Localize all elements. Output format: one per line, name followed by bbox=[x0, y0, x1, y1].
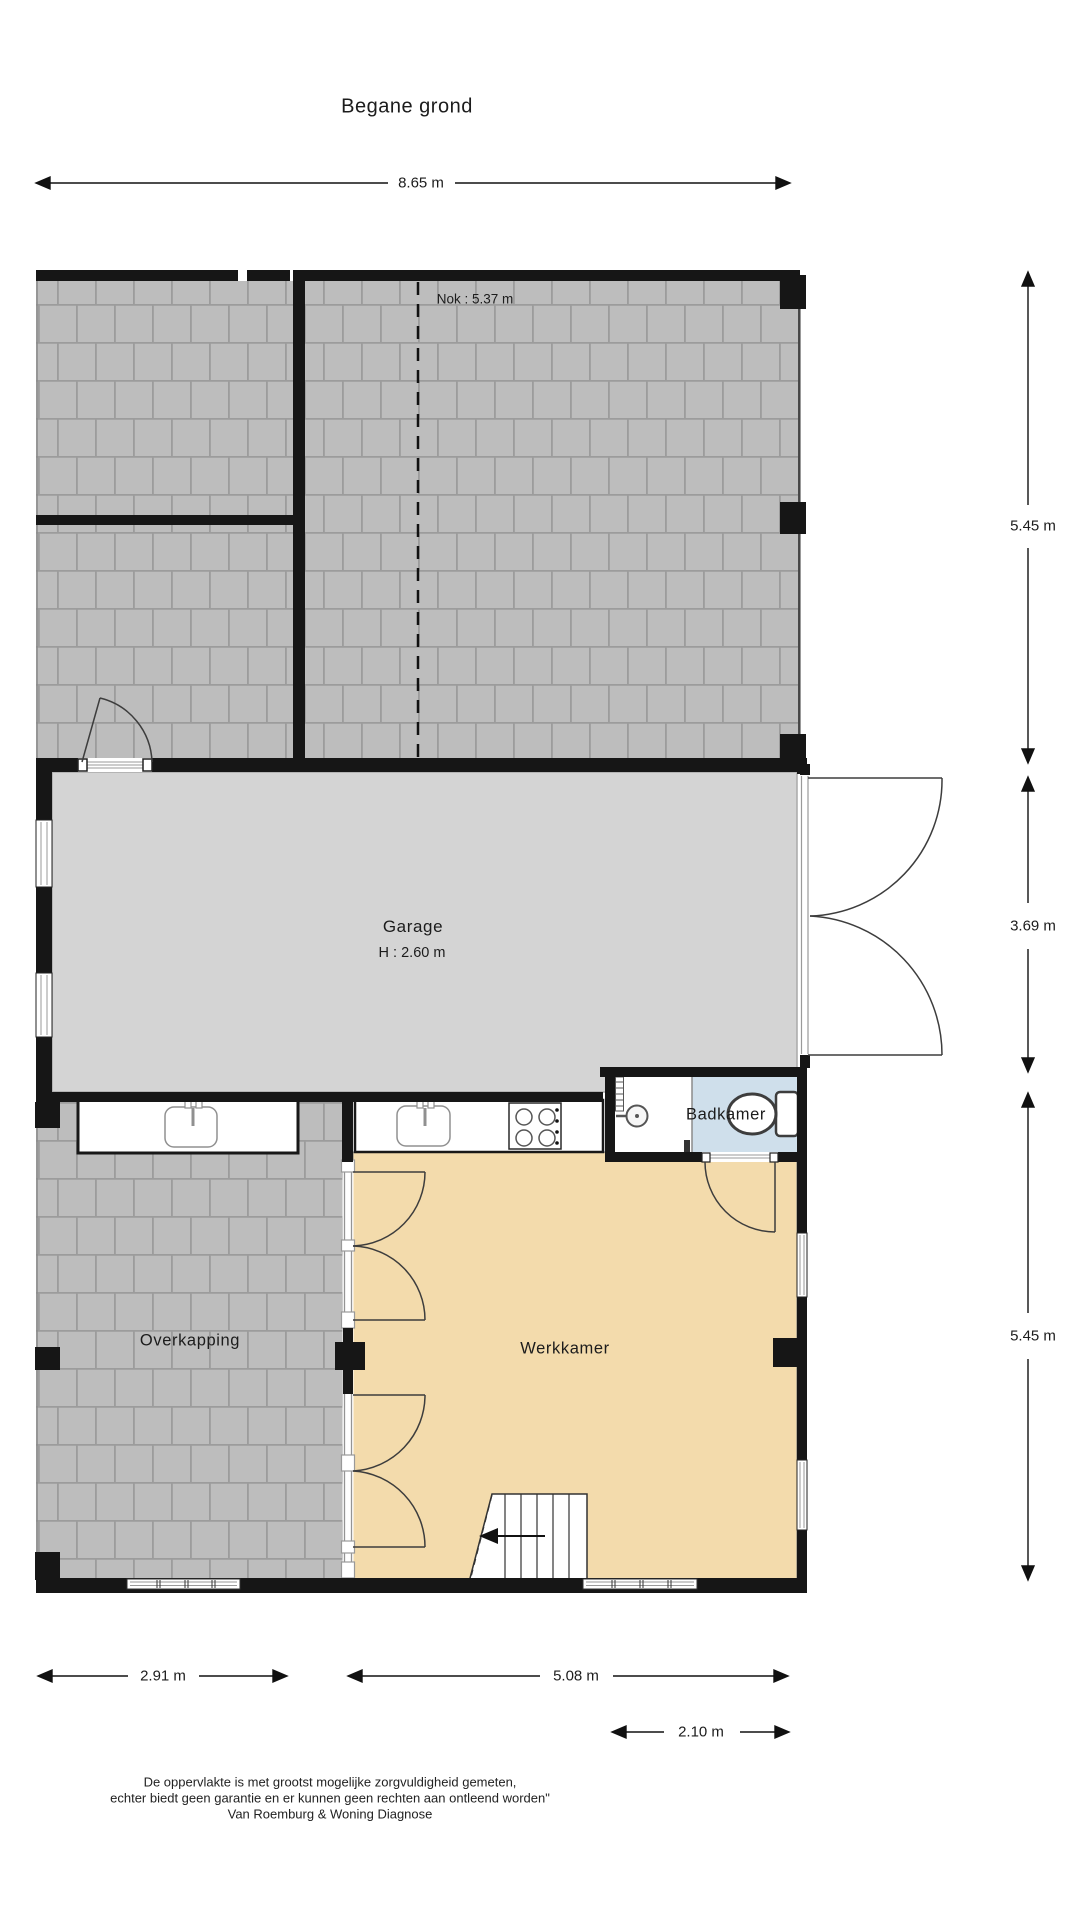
room-label-overkapping: Overkapping bbox=[140, 1332, 240, 1351]
disclaimer-line-2: echter biedt geen garantie en er kunnen … bbox=[110, 1791, 550, 1806]
garage-double-door-frame bbox=[800, 764, 810, 1068]
bottom-threshold-right bbox=[583, 1579, 697, 1589]
dim-label-bottom-middle: 5.08 m bbox=[550, 1668, 602, 1685]
nok-height-label: Nok : 5.37 m bbox=[437, 292, 514, 307]
wall-joint-gap bbox=[238, 270, 247, 281]
floor-plan-page: Begane grond Nok : 5.37 m Garage H : 2.6… bbox=[0, 0, 1080, 1920]
sink-icon bbox=[165, 1101, 217, 1147]
counter-left bbox=[78, 1100, 298, 1153]
dim-label-top: 8.65 m bbox=[395, 175, 447, 192]
bottom-threshold-left bbox=[127, 1579, 240, 1589]
paved-area-top-right bbox=[305, 281, 800, 758]
counter-right bbox=[355, 1100, 603, 1152]
floor-plan-canvas bbox=[0, 0, 1080, 1920]
stove-icon bbox=[509, 1103, 561, 1149]
room-height-garage: H : 2.60 m bbox=[379, 945, 446, 961]
badkamer-door-threshold bbox=[702, 1152, 778, 1162]
dim-label-right-lower: 5.45 m bbox=[1007, 1328, 1059, 1345]
garage-left-window bbox=[36, 820, 52, 887]
door-arc bbox=[808, 778, 942, 916]
disclaimer-line-1: De oppervlakte is met grootst mogelijke … bbox=[144, 1775, 517, 1790]
garage-top-door bbox=[78, 758, 152, 772]
door-hinge-mark bbox=[684, 1140, 690, 1152]
room-label-garage: Garage bbox=[383, 917, 443, 937]
disclaimer-line-3: Van Roemburg & Woning Diagnose bbox=[228, 1807, 433, 1822]
room-label-werkkamer: Werkkamer bbox=[520, 1340, 609, 1359]
door-arc bbox=[808, 916, 942, 1055]
garage-left-window bbox=[36, 973, 52, 1037]
page-title: Begane grond bbox=[341, 96, 473, 119]
werkkamer-right-window bbox=[797, 1233, 807, 1297]
room-label-badkamer: Badkamer bbox=[686, 1106, 766, 1125]
wall-joint-gap bbox=[290, 270, 293, 281]
dim-label-right-upper: 5.45 m bbox=[1007, 518, 1059, 535]
dim-label-right-middle: 3.69 m bbox=[1007, 918, 1059, 935]
dim-label-bottom-right: 2.10 m bbox=[675, 1724, 727, 1741]
dim-label-bottom-left: 2.91 m bbox=[137, 1668, 189, 1685]
shower-door-leaf bbox=[616, 1077, 624, 1111]
sink-icon bbox=[397, 1101, 450, 1146]
werkkamer-right-window bbox=[797, 1460, 807, 1530]
